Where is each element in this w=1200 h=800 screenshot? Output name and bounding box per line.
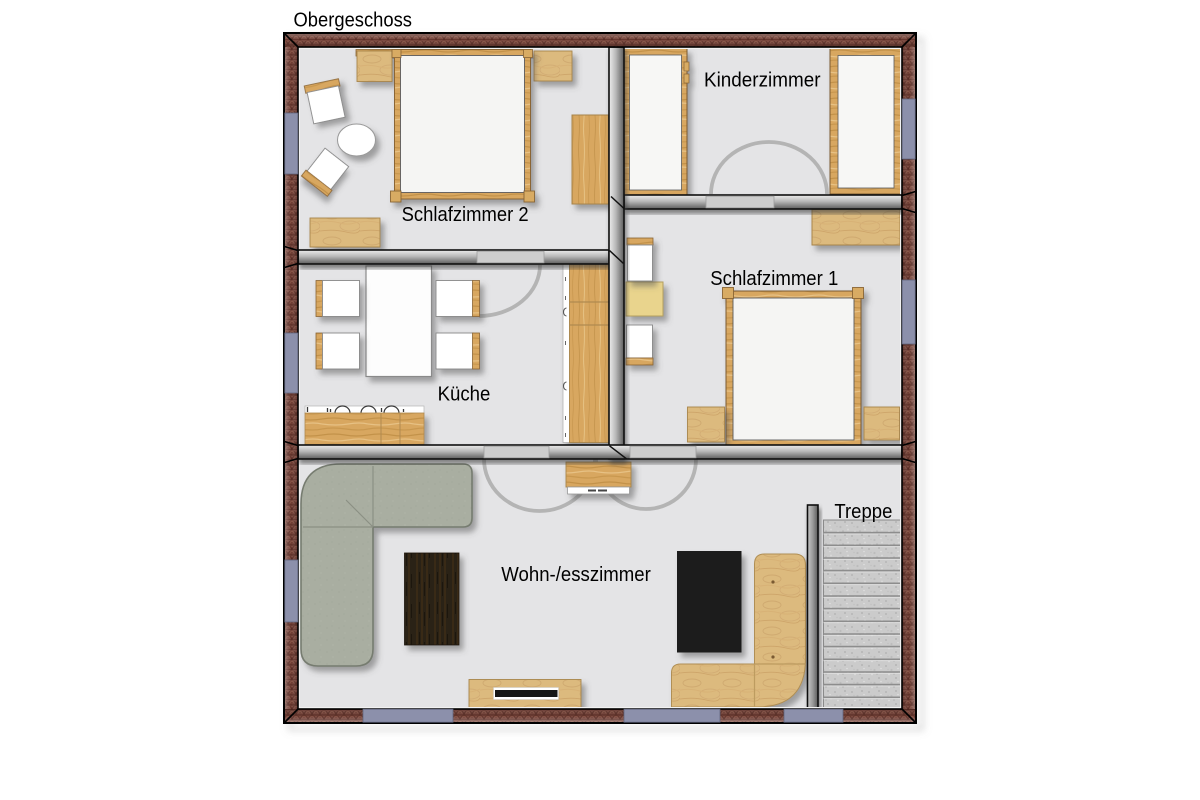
svg-text:Wohn-/esszimmer: Wohn-/esszimmer xyxy=(501,564,651,586)
svg-text:Schlafzimmer 1: Schlafzimmer 1 xyxy=(710,268,838,290)
svg-text:Obergeschoss: Obergeschoss xyxy=(294,9,413,32)
svg-text:Treppe: Treppe xyxy=(834,501,892,523)
svg-text:Schlafzimmer 2: Schlafzimmer 2 xyxy=(402,204,529,226)
svg-text:Kinderzimmer: Kinderzimmer xyxy=(704,69,821,91)
svg-text:Küche: Küche xyxy=(438,383,491,405)
